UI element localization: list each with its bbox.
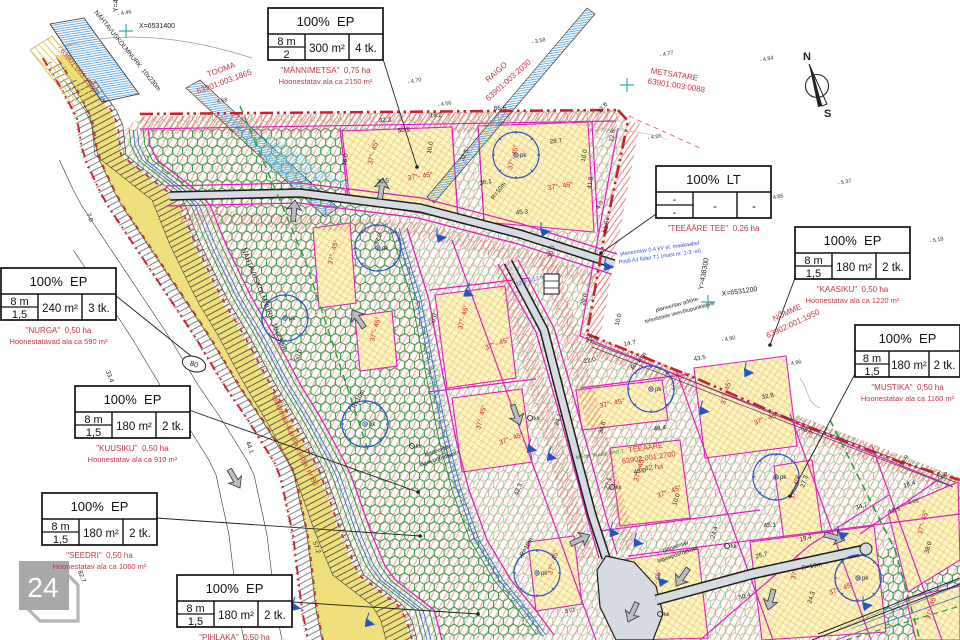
svg-text:32.3: 32.3 bbox=[379, 117, 392, 125]
svg-text:86.6: 86.6 bbox=[494, 105, 507, 112]
svg-text:kk: kk bbox=[731, 544, 737, 550]
svg-text:-: - bbox=[713, 201, 717, 213]
svg-text:45.3: 45.3 bbox=[515, 208, 528, 216]
svg-text:100% EP: 100% EP bbox=[71, 499, 129, 514]
svg-text:pk: pk bbox=[520, 153, 527, 159]
svg-text:pk: pk bbox=[369, 422, 376, 428]
svg-text:50.5: 50.5 bbox=[398, 127, 411, 135]
svg-text:Y=438100: Y=438100 bbox=[113, 0, 120, 12]
svg-text:"MÄNNIMETSA" 0,75 ha: "MÄNNIMETSA" 0,75 ha bbox=[280, 66, 371, 75]
svg-text:2 tk.: 2 tk. bbox=[882, 262, 904, 274]
svg-text:100% LT: 100% LT bbox=[686, 172, 741, 187]
svg-text:Hoonestatav ala ca 910 m²: Hoonestatav ala ca 910 m² bbox=[88, 455, 178, 464]
svg-text:240 m²: 240 m² bbox=[42, 303, 78, 315]
svg-text:"TEEÄÄRE TEE" 0,26 ha: "TEEÄÄRE TEE" 0,26 ha bbox=[668, 224, 760, 233]
svg-text:X=6531400: X=6531400 bbox=[139, 23, 175, 30]
svg-text:8 m: 8 m bbox=[186, 603, 204, 615]
svg-text:100% EP: 100% EP bbox=[879, 331, 937, 346]
svg-text:"NURGA" 0,50 ha: "NURGA" 0,50 ha bbox=[26, 326, 92, 335]
svg-text:1,5: 1,5 bbox=[806, 268, 821, 280]
svg-text:45.1: 45.1 bbox=[763, 521, 776, 529]
svg-text:2 tk.: 2 tk. bbox=[264, 610, 286, 622]
svg-text:kk: kk bbox=[534, 416, 540, 422]
svg-text:1,5: 1,5 bbox=[188, 616, 203, 628]
svg-text:24: 24 bbox=[27, 572, 58, 603]
svg-text:Hoonestatavad ala ca 590 m²: Hoonestatavad ala ca 590 m² bbox=[10, 337, 108, 346]
svg-text:pk: pk bbox=[862, 576, 869, 582]
svg-text:Hoonestatav ala ca 1160 m²: Hoonestatav ala ca 1160 m² bbox=[861, 394, 955, 403]
svg-text:180 m²: 180 m² bbox=[891, 360, 927, 372]
svg-text:3 tk.: 3 tk. bbox=[88, 303, 110, 315]
svg-text:-: - bbox=[752, 201, 756, 213]
svg-text:Hoonestatav ala ca 2150 m²: Hoonestatav ala ca 2150 m² bbox=[279, 77, 373, 86]
svg-text:8 m: 8 m bbox=[51, 521, 69, 533]
svg-text:180 m²: 180 m² bbox=[218, 610, 254, 622]
svg-text:"SEEDRI" 0,50 ha: "SEEDRI" 0,50 ha bbox=[66, 551, 133, 560]
svg-text:pk: pk bbox=[780, 475, 787, 481]
svg-text:pk: pk bbox=[655, 387, 662, 393]
svg-text:8 m: 8 m bbox=[277, 36, 295, 48]
svg-text:-: - bbox=[673, 207, 677, 219]
svg-text:8 m: 8 m bbox=[10, 296, 28, 308]
svg-text:kk: kk bbox=[416, 444, 422, 450]
svg-text:30.5: 30.5 bbox=[376, 177, 389, 185]
svg-text:2: 2 bbox=[283, 49, 289, 61]
svg-text:2 tk.: 2 tk. bbox=[129, 528, 151, 540]
svg-text:2 tk.: 2 tk. bbox=[934, 360, 956, 372]
svg-text:180 m²: 180 m² bbox=[116, 421, 152, 433]
svg-text:100% EP: 100% EP bbox=[104, 392, 162, 407]
svg-text:100% EP: 100% EP bbox=[206, 581, 264, 596]
svg-text:8 m: 8 m bbox=[863, 353, 881, 365]
svg-text:1,5: 1,5 bbox=[86, 427, 101, 439]
svg-text:kk: kk bbox=[616, 485, 622, 491]
svg-text:18.2: 18.2 bbox=[430, 112, 443, 120]
svg-text:pk: pk bbox=[289, 316, 296, 322]
svg-text:8 m: 8 m bbox=[84, 414, 102, 426]
svg-text:Hoonestatav ala ca 1220 m²: Hoonestatav ala ca 1220 m² bbox=[806, 296, 900, 305]
svg-text:180 m²: 180 m² bbox=[836, 262, 872, 274]
svg-text:"KUUSIKU" 0,50 ha: "KUUSIKU" 0,50 ha bbox=[96, 444, 169, 453]
svg-text:1,5: 1,5 bbox=[53, 534, 68, 546]
svg-text:pk: pk bbox=[541, 571, 548, 577]
svg-text:S: S bbox=[824, 108, 831, 120]
svg-text:"KAASIKU" 0,50 ha: "KAASIKU" 0,50 ha bbox=[817, 285, 889, 294]
svg-text:-: - bbox=[673, 194, 677, 206]
svg-text:8 m: 8 m bbox=[804, 255, 822, 267]
svg-text:1,5: 1,5 bbox=[864, 366, 879, 378]
svg-text:4 tk.: 4 tk. bbox=[355, 43, 377, 55]
svg-text:pk: pk bbox=[382, 246, 389, 252]
svg-text:100% EP: 100% EP bbox=[30, 274, 88, 289]
svg-text:Hoonestatav ala ca 1060 m²: Hoonestatav ala ca 1060 m² bbox=[53, 562, 147, 571]
svg-text:N: N bbox=[803, 51, 811, 63]
svg-text:kk: kk bbox=[664, 612, 670, 618]
svg-text:180 m²: 180 m² bbox=[83, 528, 119, 540]
svg-text:1,5: 1,5 bbox=[12, 309, 27, 321]
svg-text:100% EP: 100% EP bbox=[824, 233, 882, 248]
svg-text:300 m²: 300 m² bbox=[309, 43, 345, 55]
svg-text:"MUSTIKA" 0,50 ha: "MUSTIKA" 0,50 ha bbox=[871, 383, 944, 392]
svg-text:100% EP: 100% EP bbox=[297, 14, 355, 29]
svg-text:28.7: 28.7 bbox=[549, 137, 562, 145]
svg-text:2 tk.: 2 tk. bbox=[162, 421, 184, 433]
svg-text:"PIHLAKA" 0,50 ha: "PIHLAKA" 0,50 ha bbox=[199, 633, 270, 640]
